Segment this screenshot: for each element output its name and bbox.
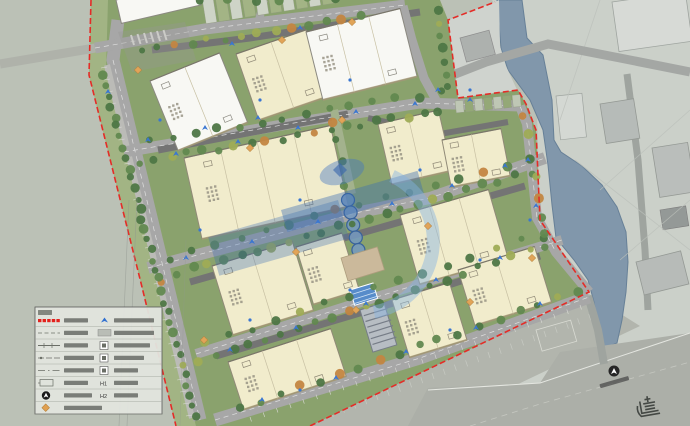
svg-text:H2: H2 <box>100 394 107 400</box>
svg-text:H1: H1 <box>100 382 107 388</box>
